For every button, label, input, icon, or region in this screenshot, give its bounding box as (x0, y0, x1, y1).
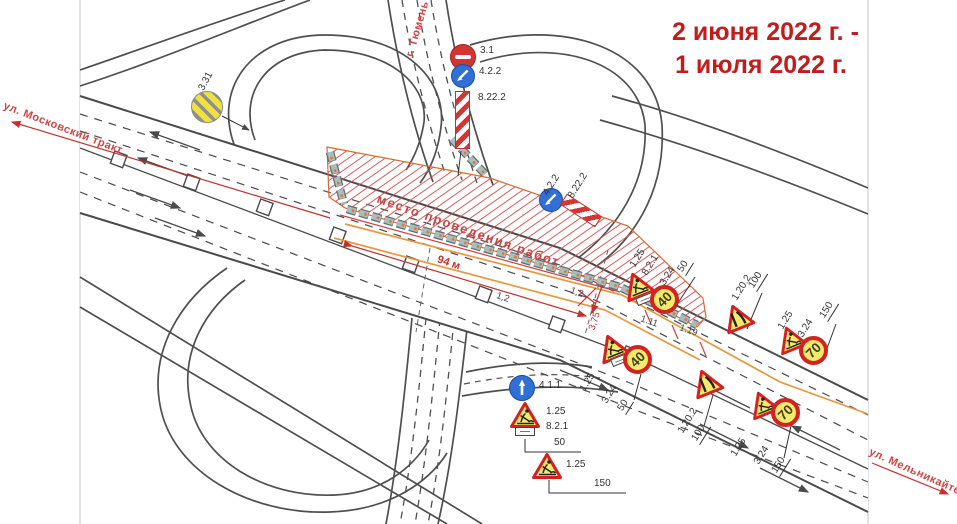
works-code: 1.25 (566, 459, 585, 471)
end-of-restrictions-sign-icon (191, 91, 223, 123)
roadworks-sign-icon (532, 452, 562, 480)
speed-limit-70-sign: 70 (771, 398, 800, 427)
speed-value: 70 (803, 340, 824, 361)
works-code: 1.25 (546, 406, 565, 418)
speed-limit-40-sign: 40 (623, 345, 652, 374)
speed-value: 40 (627, 349, 648, 370)
plate-mark (520, 431, 530, 433)
date-line-2: 1 июля 2022 г. (672, 49, 859, 82)
speed-limit-40-sign: 40 (650, 285, 679, 314)
speed-value: 40 (654, 289, 675, 310)
panel-code: 8.22.2 (478, 92, 506, 104)
no-entry-bar (455, 55, 471, 59)
vertical-panel-sign-icon (455, 91, 470, 149)
detour-code: 4.2.2 (479, 66, 501, 78)
speed-value: 70 (775, 402, 796, 423)
work-period-dates: 2 июня 2022 г. - 1 июля 2022 г. (672, 16, 859, 82)
roadworks-sign-icon (510, 401, 540, 429)
distance-150: 150 (594, 478, 611, 490)
no-entry-code: 3.1 (480, 45, 494, 57)
plate-mark (640, 297, 650, 302)
detour-left-sign-icon (451, 64, 475, 88)
traffic-scheme-page: 2 июня 2022 г. - 1 июля 2022 г. ул. Моск… (0, 0, 957, 524)
zone-plate-icon (515, 427, 535, 436)
speed-limit-70-sign: 70 (799, 336, 828, 365)
up-arrow-icon (510, 375, 534, 401)
straight-ahead-code: 4.1.1 (539, 380, 561, 392)
detour-arrow-icon (452, 64, 474, 88)
straight-ahead-sign-icon (509, 375, 535, 401)
date-line-1: 2 июня 2022 г. - (672, 16, 859, 49)
zone-plate-code: 8.2.1 (546, 421, 568, 433)
distance-50: 50 (554, 437, 565, 449)
